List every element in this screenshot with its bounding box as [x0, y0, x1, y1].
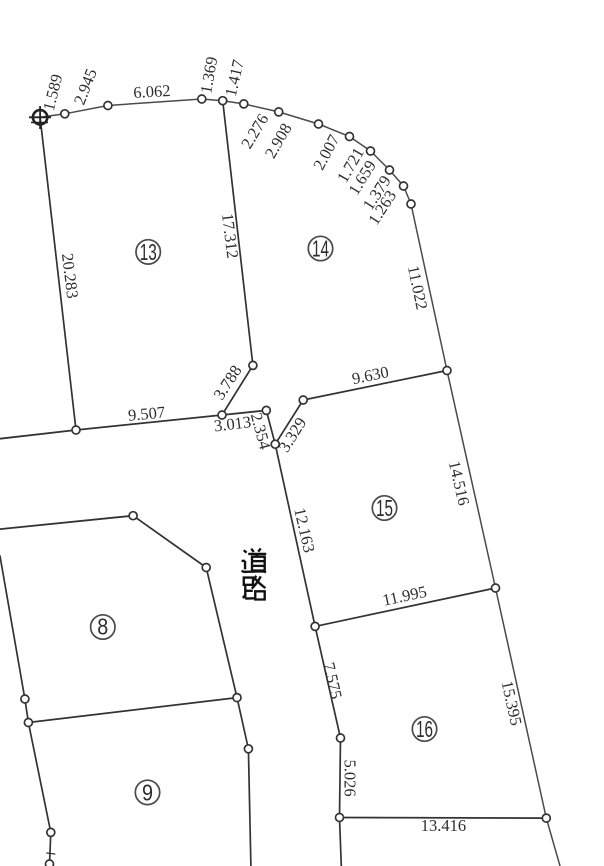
svg-text:15.395: 15.395: [498, 679, 526, 727]
svg-text:11.022: 11.022: [404, 264, 432, 312]
svg-text:7.575: 7.575: [319, 660, 346, 700]
svg-text:20.283: 20.283: [58, 252, 82, 299]
svg-text:1.417: 1.417: [221, 58, 248, 98]
svg-text:1.369: 1.369: [196, 55, 221, 95]
svg-text:3.788: 3.788: [209, 362, 245, 403]
svg-text:3.013: 3.013: [213, 412, 252, 435]
svg-text:13.416: 13.416: [421, 816, 466, 835]
svg-text:1.589: 1.589: [39, 72, 66, 113]
svg-text:2.945: 2.945: [70, 66, 101, 107]
svg-text:2.354: 2.354: [247, 411, 275, 452]
svg-text:14.516: 14.516: [445, 459, 474, 507]
svg-text:13: 13: [140, 239, 157, 265]
svg-text:11.995: 11.995: [381, 582, 429, 610]
svg-text:9.507: 9.507: [127, 402, 166, 424]
svg-text:8: 8: [97, 614, 108, 640]
svg-text:3.329: 3.329: [275, 414, 311, 456]
svg-text:15: 15: [376, 495, 393, 521]
svg-text:17.312: 17.312: [218, 212, 242, 259]
svg-text:6.062: 6.062: [133, 81, 171, 102]
svg-text:9: 9: [142, 780, 153, 806]
svg-text:16: 16: [416, 716, 433, 742]
svg-text:9.630: 9.630: [350, 362, 390, 388]
svg-text:14: 14: [312, 236, 329, 262]
svg-text:5.026: 5.026: [340, 759, 359, 796]
